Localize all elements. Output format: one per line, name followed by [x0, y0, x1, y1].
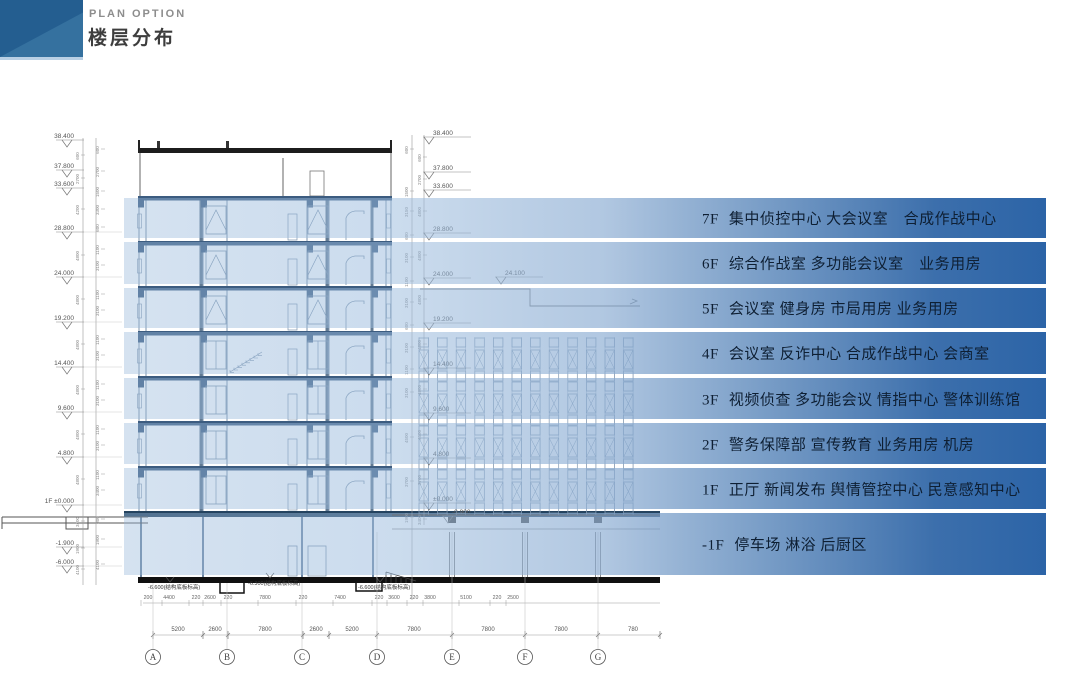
svg-text:5100: 5100	[460, 595, 472, 601]
floor-rooms: 视频侦查 多功能会议 情指中心 警体训练馆	[729, 392, 1021, 408]
svg-text:A: A	[150, 652, 157, 662]
floor-band-b1f: -1F停车场 淋浴 后厨区	[124, 513, 1046, 575]
header-eyebrow: PLAN OPTION	[89, 8, 186, 20]
floor-level: 5F	[702, 302, 719, 318]
floor-band-label: 6F综合作战室 多功能会议室 业务用房	[702, 253, 981, 274]
floor-level: 7F	[702, 212, 719, 228]
svg-text:4100: 4100	[95, 559, 100, 570]
floor-rooms: 会议室 反诈中心 合成作战中心 会商室	[729, 347, 990, 363]
svg-text:4200: 4200	[75, 204, 80, 215]
floor-level: 6F	[702, 257, 719, 273]
svg-text:2700: 2700	[417, 174, 422, 185]
svg-text:3600: 3600	[388, 595, 400, 601]
svg-text:300: 300	[95, 516, 100, 524]
svg-text:28.800: 28.800	[54, 225, 74, 232]
svg-text:600: 600	[95, 146, 100, 154]
svg-text:-6.000: -6.000	[56, 559, 75, 566]
slide: 38.40037.80033.60028.80024.00019.20014.4…	[0, 0, 1080, 699]
svg-text:38.400: 38.400	[54, 133, 74, 140]
floor-band-label: 5F会议室 健身房 市局用房 业务用房	[702, 298, 959, 319]
svg-text:1900: 1900	[75, 543, 80, 554]
floor-rooms: 警务保障部 宣传教育 业务用房 机房	[729, 437, 974, 453]
header-accent-underline	[0, 57, 83, 60]
svg-text:780: 780	[628, 627, 639, 633]
svg-text:600: 600	[95, 224, 100, 232]
svg-text:2700: 2700	[75, 173, 80, 184]
svg-text:7800: 7800	[554, 627, 568, 633]
svg-text:38.400: 38.400	[433, 130, 453, 137]
floor-band-label: 3F视频侦查 多功能会议 情指中心 警体训练馆	[702, 388, 1021, 409]
floor-band-label: -1F停车场 淋浴 后厨区	[702, 534, 867, 555]
svg-text:-1.900: -1.900	[56, 540, 75, 547]
svg-text:2600: 2600	[309, 627, 323, 633]
svg-text:1500: 1500	[404, 186, 409, 197]
svg-text:4400: 4400	[163, 595, 175, 601]
svg-text:3100: 3100	[95, 305, 100, 316]
left-elevation-markers: 38.40037.80033.60028.80024.00019.20014.4…	[45, 133, 122, 573]
floor-level: 2F	[702, 437, 719, 453]
svg-text:C: C	[299, 652, 305, 662]
floor-band-6f: 6F综合作战室 多功能会议室 业务用房	[124, 242, 1046, 284]
svg-text:3400: 3400	[95, 485, 100, 496]
svg-text:4800: 4800	[75, 429, 80, 440]
svg-text:-6.600(结构底板标高): -6.600(结构底板标高)	[148, 583, 200, 591]
svg-text:3300: 3300	[95, 204, 100, 215]
svg-text:37.800: 37.800	[54, 163, 74, 170]
svg-text:-6.600(结构底板标高): -6.600(结构底板标高)	[358, 583, 410, 591]
svg-text:2600: 2600	[204, 595, 216, 601]
svg-text:4800: 4800	[75, 474, 80, 485]
svg-text:220: 220	[224, 595, 233, 601]
svg-text:4800: 4800	[75, 339, 80, 350]
svg-text:7400: 7400	[334, 595, 346, 601]
svg-text:24.000: 24.000	[54, 270, 74, 277]
svg-text:F: F	[522, 652, 527, 662]
floor-band-7f: 7F集中侦控中心 大会议室 合成作战中心	[124, 198, 1046, 238]
svg-text:1100: 1100	[95, 245, 100, 255]
svg-text:600: 600	[404, 146, 409, 154]
svg-text:3100: 3100	[95, 260, 100, 271]
floor-level: 4F	[702, 347, 719, 363]
svg-text:1100: 1100	[95, 425, 100, 435]
floor-band-label: 4F会议室 反诈中心 合成作战中心 会商室	[702, 343, 990, 364]
floor-band-2f: 2F警务保障部 宣传教育 业务用房 机房	[124, 423, 1046, 464]
svg-text:7800: 7800	[407, 627, 421, 633]
svg-text:1100: 1100	[95, 335, 100, 345]
floor-band-4f: 4F会议室 反诈中心 合成作战中心 会商室	[124, 332, 1046, 374]
floor-band-3f: 3F视频侦查 多功能会议 情指中心 警体训练馆	[124, 378, 1046, 419]
header-accent-block	[0, 0, 83, 57]
floor-band-5f: 5F会议室 健身房 市局用房 业务用房	[124, 288, 1046, 328]
svg-text:3100: 3100	[95, 440, 100, 451]
svg-text:4100: 4100	[75, 564, 80, 575]
floor-band-label: 2F警务保障部 宣传教育 业务用房 机房	[702, 433, 974, 454]
floor-rooms: 会议室 健身房 市局用房 业务用房	[729, 302, 959, 318]
svg-text:1100: 1100	[95, 470, 100, 480]
svg-text:7800: 7800	[259, 595, 271, 601]
svg-text:220: 220	[299, 595, 308, 601]
svg-text:220: 220	[192, 595, 201, 601]
svg-text:5200: 5200	[171, 627, 185, 633]
svg-text:1100: 1100	[95, 290, 100, 300]
svg-text:220: 220	[375, 595, 384, 601]
floor-band-label: 1F正厅 新闻发布 舆情管控中心 民意感知中心	[702, 478, 1021, 499]
svg-text:4800: 4800	[75, 294, 80, 305]
floor-rooms: 集中侦控中心 大会议室 合成作战中心	[729, 212, 997, 228]
svg-text:14.400: 14.400	[54, 360, 74, 367]
svg-text:9.600: 9.600	[58, 405, 75, 412]
svg-text:600: 600	[75, 152, 80, 160]
svg-text:600: 600	[417, 154, 422, 162]
svg-text:3400: 3400	[75, 516, 80, 527]
svg-text:2500: 2500	[507, 595, 519, 601]
svg-text:33.600: 33.600	[433, 183, 453, 190]
svg-text:1500: 1500	[95, 186, 100, 197]
floor-level: 1F	[702, 482, 719, 498]
floor-band-label: 7F集中侦控中心 大会议室 合成作战中心	[702, 208, 997, 229]
svg-text:3800: 3800	[424, 595, 436, 601]
svg-text:5200: 5200	[345, 627, 359, 633]
floor-level: -1F	[702, 538, 724, 554]
floor-rooms: 正厅 新闻发布 舆情管控中心 民意感知中心	[729, 482, 1021, 498]
svg-text:1900: 1900	[95, 534, 100, 545]
svg-text:4800: 4800	[75, 384, 80, 395]
svg-text:19.200: 19.200	[54, 315, 74, 322]
svg-text:33.600: 33.600	[54, 181, 74, 188]
svg-text:4.800: 4.800	[58, 450, 75, 457]
floor-rooms: 综合作战室 多功能会议室 业务用房	[729, 257, 981, 273]
svg-text:200: 200	[144, 595, 153, 601]
svg-text:37.800: 37.800	[433, 165, 453, 172]
svg-text:D: D	[374, 652, 381, 662]
svg-text:-6.300(结构底板标高): -6.300(结构底板标高)	[248, 579, 300, 587]
page-title: 楼层分布	[88, 23, 176, 50]
svg-text:4800: 4800	[75, 250, 80, 261]
svg-text:2600: 2600	[208, 627, 222, 633]
svg-text:G: G	[595, 652, 602, 662]
floor-level: 3F	[702, 392, 719, 408]
svg-text:220: 220	[410, 595, 419, 601]
svg-text:3100: 3100	[95, 350, 100, 361]
svg-text:7800: 7800	[481, 627, 495, 633]
svg-text:3100: 3100	[95, 395, 100, 406]
svg-text:E: E	[449, 652, 455, 662]
svg-text:220: 220	[493, 595, 502, 601]
svg-text:1100: 1100	[95, 380, 100, 390]
svg-text:B: B	[224, 652, 230, 662]
floor-rooms: 停车场 淋浴 后厨区	[734, 538, 867, 554]
svg-text:1F ±0.000: 1F ±0.000	[45, 498, 75, 505]
floor-band-1f: 1F正厅 新闻发布 舆情管控中心 民意感知中心	[124, 468, 1046, 509]
svg-text:7800: 7800	[258, 627, 272, 633]
svg-text:2700: 2700	[95, 166, 100, 177]
